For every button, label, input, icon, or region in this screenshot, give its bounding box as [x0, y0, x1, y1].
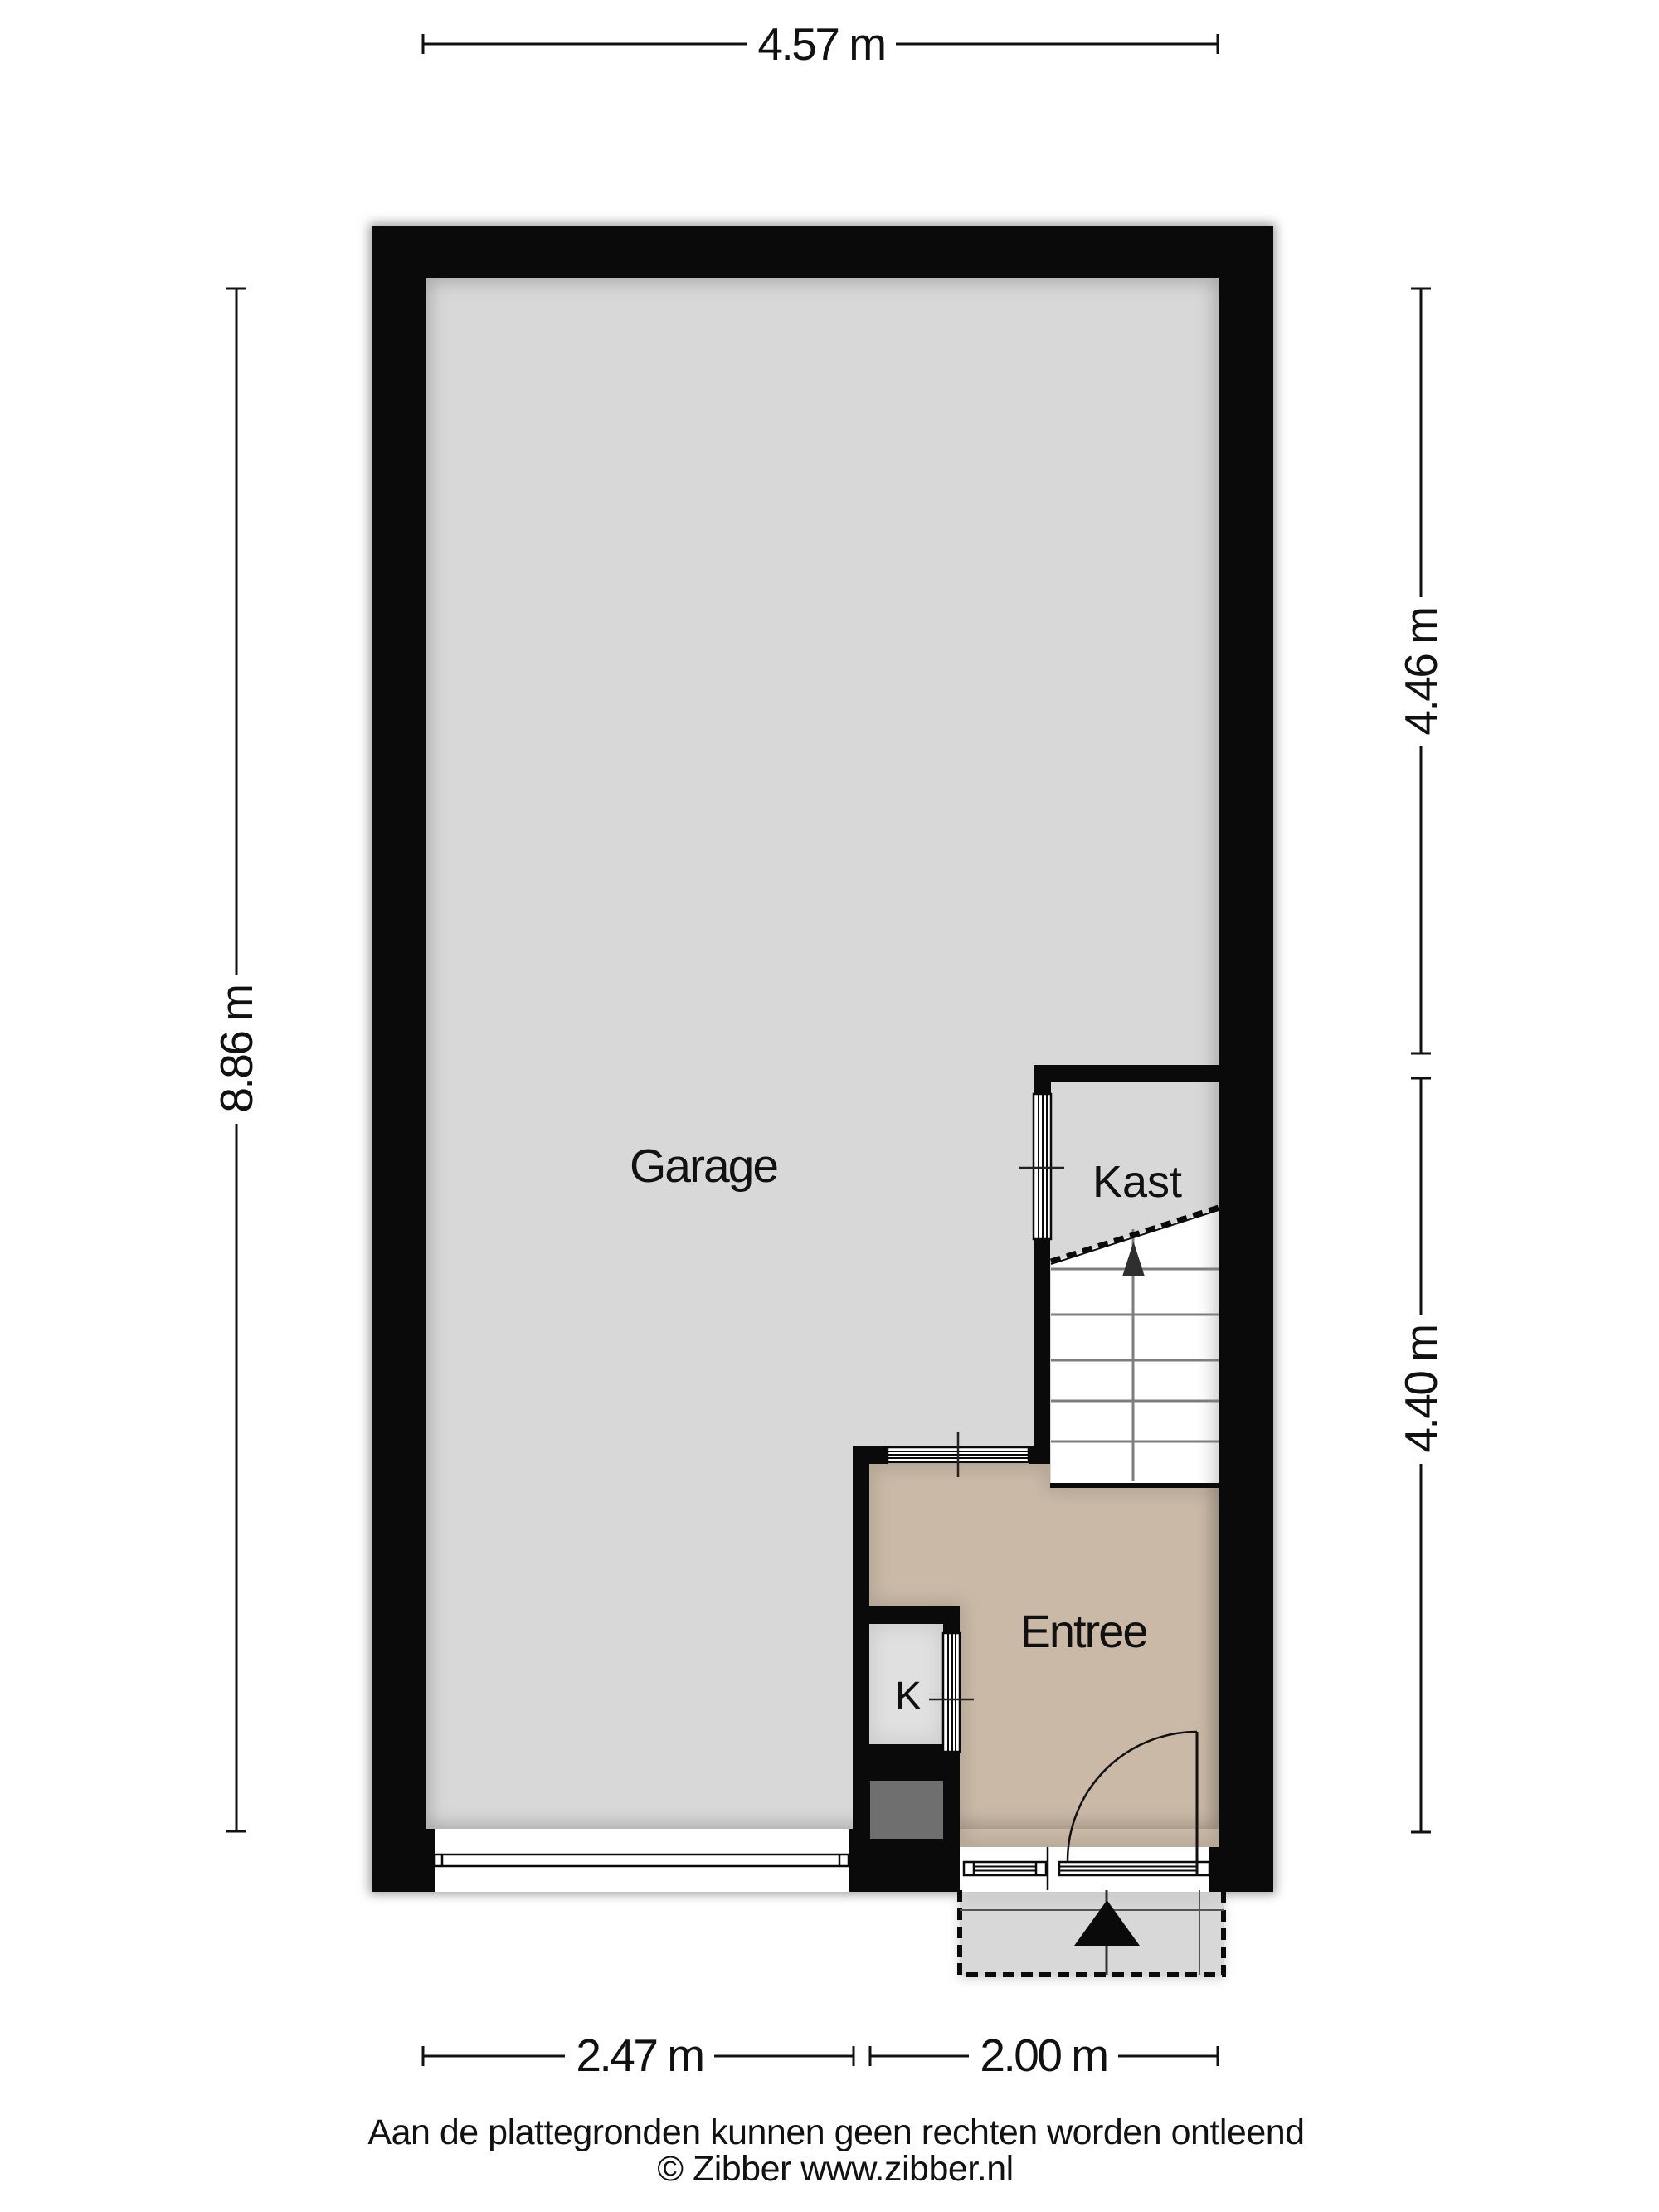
svg-text:4.40 m: 4.40 m	[1395, 1325, 1447, 1452]
svg-text:Kast: Kast	[1092, 1157, 1182, 1207]
svg-text:Garage: Garage	[630, 1140, 777, 1193]
svg-text:K: K	[895, 1675, 922, 1719]
svg-text:2.00 m: 2.00 m	[980, 2030, 1107, 2081]
svg-text:Entree: Entree	[1020, 1605, 1147, 1657]
svg-text:Aan de plattegronden kunnen ge: Aan de plattegronden kunnen geen rechten…	[367, 2112, 1304, 2152]
svg-text:4.57 m: 4.57 m	[757, 18, 884, 70]
svg-text:4.46 m: 4.46 m	[1395, 608, 1447, 735]
svg-text:2.47 m: 2.47 m	[576, 2030, 703, 2081]
svg-text:8.86 m: 8.86 m	[211, 985, 262, 1112]
svg-text:© Zibber www.zibber.nl: © Zibber www.zibber.nl	[657, 2149, 1013, 2189]
